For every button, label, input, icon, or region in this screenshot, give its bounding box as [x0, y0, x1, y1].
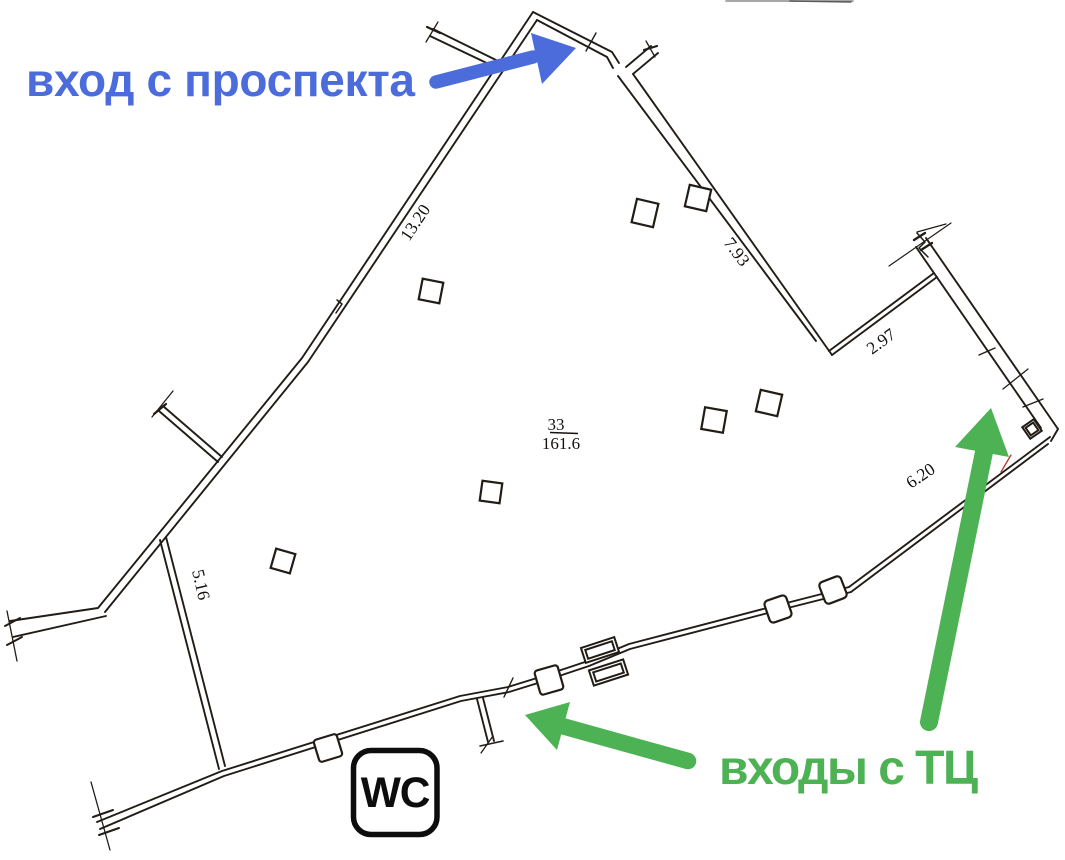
svg-text:161.6: 161.6 [542, 434, 580, 453]
svg-text:6.20: 6.20 [902, 458, 939, 492]
svg-text:WC: WC [361, 770, 430, 817]
svg-text:5.16: 5.16 [188, 567, 214, 602]
svg-text:входы с ТЦ: входы с ТЦ [719, 742, 978, 795]
svg-text:33: 33 [548, 415, 565, 434]
svg-text:вход с проспекта: вход с проспекта [26, 54, 415, 106]
